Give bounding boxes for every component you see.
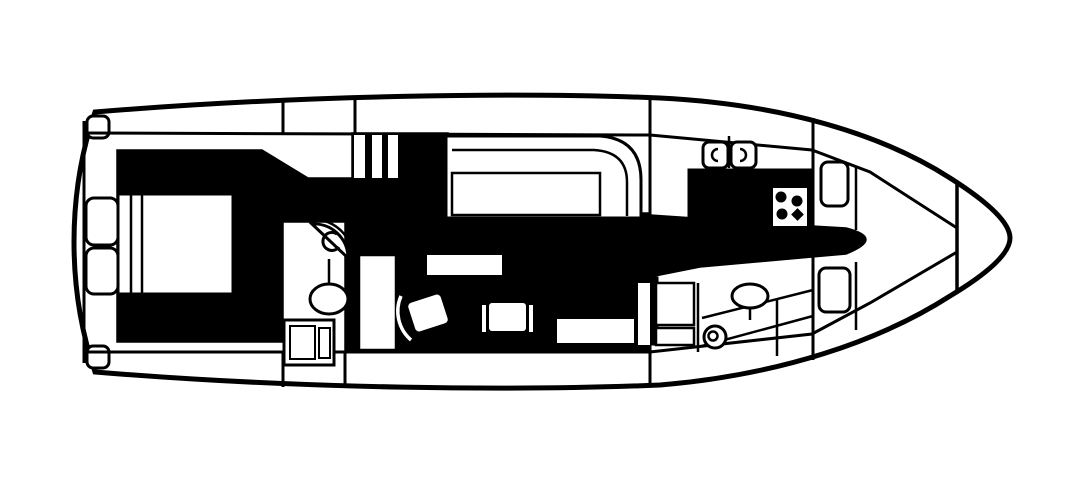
forward-head-sink [732,284,768,308]
locker-top [821,162,848,206]
swivel-chair-right [489,303,526,331]
companionway-steps [353,134,399,179]
forward-toilet-center [709,332,718,341]
forward-berth-foot [656,328,694,345]
galley-sink-left [703,142,728,168]
burner-3 [777,209,788,220]
forward-berth [656,283,694,325]
deck-plan-svg [0,0,1067,500]
shower-pan [290,326,315,359]
burner-2 [792,196,803,207]
coffee-table [427,255,502,275]
fan-vanity-sink [312,224,348,258]
bench-seat [557,319,634,343]
nightstand-upper [86,198,118,245]
salon-door-slat [638,283,650,345]
stern-corner-step-bottom [87,346,109,368]
head-door-cabinet [359,255,396,350]
chair-right-arm-left [482,305,486,332]
step-1 [353,134,366,179]
double-berth [118,194,233,294]
locker-bottom [819,268,850,312]
galley-counter-foot [670,221,690,263]
nightstand-lower [86,248,118,294]
stern-corner-step-top [87,116,109,138]
shower-seat [319,328,330,358]
settee-cushion [452,173,600,215]
galley-sink-right [731,142,756,168]
chair-right-arm-right [529,305,533,332]
toilet [310,284,348,314]
step-3 [387,134,399,179]
step-2 [371,134,383,179]
aft-stateroom [86,194,233,294]
boat-floor-plan [0,0,1067,500]
burner-1 [776,192,787,203]
